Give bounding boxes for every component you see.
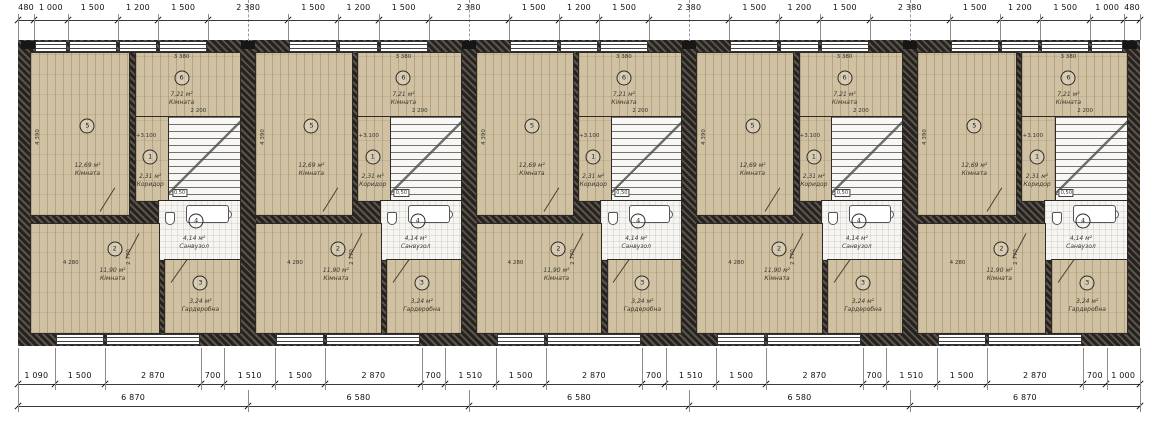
- room-number-badge: 4: [631, 214, 646, 229]
- interior-dim-4280: 4 280: [728, 260, 744, 266]
- top-dim-line: [18, 20, 1140, 21]
- window-top: [1041, 41, 1089, 52]
- window-top: [600, 41, 648, 52]
- room-name: Кімната: [519, 170, 545, 178]
- wardrobe-floor: [165, 260, 240, 333]
- bathroom-floor: [159, 201, 241, 260]
- room-number-badge: 2: [107, 242, 122, 257]
- bottom-dim-line: [18, 384, 1140, 385]
- room-area: 2,31 м²: [1023, 173, 1050, 181]
- top-dim-label: 1 500: [612, 3, 636, 12]
- extension-line: [429, 14, 430, 40]
- interior-dim-2200: 2 200: [190, 108, 206, 114]
- shaft-label: 0,50: [614, 189, 629, 197]
- door-swing-line: [764, 187, 780, 211]
- extension-line: [546, 348, 547, 390]
- extension-line: [599, 14, 600, 40]
- room-area: 12,69 м²: [298, 162, 324, 170]
- shaft-label: 0,50: [1059, 189, 1074, 197]
- interior-dim-3380: 3 380: [1061, 54, 1077, 60]
- shaft-label: 0,50: [172, 189, 187, 197]
- extension-line: [18, 348, 19, 390]
- room-area: 4,14 м²: [401, 235, 431, 243]
- extension-line: [1140, 14, 1141, 40]
- bathroom-floor: [381, 201, 461, 260]
- bottom-dim-label: 1 510: [238, 371, 262, 380]
- extension-line: [820, 14, 821, 40]
- top-dim-label: 1 500: [171, 3, 195, 12]
- bottom-dim-label: 1 000: [1111, 371, 1135, 380]
- room-area: 2,31 м²: [800, 173, 827, 181]
- extension-line: [118, 14, 119, 40]
- room-number: 3: [1080, 275, 1095, 290]
- extension-line: [68, 14, 69, 40]
- room-name: Коридор: [800, 181, 827, 189]
- top-dim-label: 1 500: [81, 3, 105, 12]
- window-top: [69, 41, 117, 52]
- window-top: [510, 41, 558, 52]
- room-label: 3,24 м² Гардеробна: [403, 298, 440, 314]
- interior-dim-4280: 4 280: [287, 260, 303, 266]
- floor-plan-drawing: 5 6 1 4 2 3 12,69 м² Кімната 7,21 м² Кім…: [0, 0, 1159, 422]
- window-top: [35, 41, 67, 52]
- interior-dim-2200: 2 200: [412, 108, 428, 114]
- vent-block-icon: [1123, 41, 1137, 49]
- extension-line: [509, 14, 510, 40]
- top-dim-label: 1 200: [788, 3, 812, 12]
- extension-line: [1090, 14, 1091, 40]
- room-number: 2: [772, 242, 787, 257]
- room-area: 2,31 м²: [137, 173, 164, 181]
- room-number-badge: 5: [304, 118, 319, 133]
- room-name: Гардеробна: [624, 306, 661, 314]
- room-name: Кімната: [391, 99, 416, 107]
- interior-dim-4280: 4 280: [950, 260, 966, 266]
- interior-dim-4390: 4 390: [35, 129, 41, 145]
- total-dim-label: 6 580: [567, 393, 591, 402]
- room-number: 2: [994, 242, 1009, 257]
- extension-line: [870, 14, 871, 40]
- room-area: 7,21 м²: [611, 91, 636, 99]
- room-name: Санвузол: [1066, 243, 1096, 251]
- bottom-dim-label: 1 510: [458, 371, 482, 380]
- top-dim-label: 1 500: [963, 3, 987, 12]
- bottom-dim-label: 2 870: [582, 371, 606, 380]
- door-swing-line: [393, 259, 410, 283]
- room-number-badge: 5: [967, 118, 982, 133]
- wardrobe-floor: [1052, 260, 1127, 333]
- bathroom-floor: [601, 201, 681, 260]
- top-dim-label: 1 200: [347, 3, 371, 12]
- room-area: 11,90 м²: [986, 267, 1012, 275]
- room-area: 12,69 м²: [739, 162, 765, 170]
- extension-line: [1124, 14, 1125, 40]
- room-label: 11,90 м² Кімната: [543, 267, 569, 283]
- extension-line: [201, 348, 202, 390]
- room-number: 6: [174, 71, 189, 86]
- room-number-badge: 4: [1076, 214, 1091, 229]
- interior-dim-3380: 3 380: [174, 54, 190, 60]
- interior-dim-4390: 4 390: [922, 129, 928, 145]
- extension-line: [224, 348, 225, 390]
- elevation-mark: +3.100: [800, 133, 820, 139]
- vent-block-icon: [241, 41, 255, 49]
- room-area: 7,21 м²: [169, 91, 194, 99]
- window-bottom: [497, 334, 545, 345]
- extension-line: [18, 390, 19, 412]
- room-area: 12,69 м²: [519, 162, 545, 170]
- toilet-icon: [165, 212, 175, 225]
- room-label: 2,31 м² Коридор: [359, 173, 386, 189]
- room-number: 1: [143, 149, 158, 164]
- interior-dim-2770: 2 770: [790, 250, 796, 266]
- top-dim-label: 1 200: [567, 3, 591, 12]
- room-number: 4: [851, 214, 866, 229]
- extension-line: [910, 390, 911, 412]
- top-dim-label: 1 500: [392, 3, 416, 12]
- interior-dim-3380: 3 380: [616, 54, 632, 60]
- room-number: 6: [396, 71, 411, 86]
- bottom-dim-label: 1 510: [679, 371, 703, 380]
- room-number-badge: 3: [635, 275, 650, 290]
- room-5-bedroom-floor: [256, 53, 352, 215]
- window-bottom: [988, 334, 1082, 345]
- room-label: 7,21 м² Кімната: [611, 91, 636, 107]
- extension-line: [105, 348, 106, 390]
- room-label: 3,24 м² Гардеробна: [624, 298, 661, 314]
- window-bottom: [326, 334, 420, 345]
- extension-line: [1107, 348, 1108, 390]
- room-name: Гардеробна: [182, 306, 219, 314]
- room-area: 2,31 м²: [359, 173, 386, 181]
- room-label: 2,31 м² Коридор: [1023, 173, 1050, 189]
- bottom-dim-label: 700: [646, 371, 662, 380]
- top-dim-label: 2 380: [677, 3, 701, 12]
- room-2-bedroom-floor: [256, 224, 381, 333]
- room-label: 7,21 м² Кімната: [832, 91, 857, 107]
- extension-line: [55, 348, 56, 390]
- interior-dim-3380: 3 380: [837, 54, 853, 60]
- room-label: 12,69 м² Кімната: [739, 162, 765, 178]
- room-label: 11,90 м² Кімната: [986, 267, 1012, 283]
- room-area: 7,21 м²: [1056, 91, 1081, 99]
- wardrobe-floor: [828, 260, 902, 333]
- room-name: Кімната: [832, 99, 857, 107]
- room-5-bedroom-floor: [477, 53, 573, 215]
- room-name: Кімната: [611, 99, 636, 107]
- door-swing-line: [986, 187, 1002, 211]
- room-name: Кімната: [764, 275, 790, 283]
- room-label: 3,24 м² Гардеробна: [844, 298, 881, 314]
- room-name: Коридор: [580, 181, 607, 189]
- room-label: 2,31 м² Коридор: [800, 173, 827, 189]
- window-bottom: [106, 334, 200, 345]
- townhouse-unit: 5 6 1 4 2 3 12,69 м² Кімната 7,21 м² Кім…: [918, 53, 1127, 333]
- bottom-dim-label: 2 870: [1023, 371, 1047, 380]
- room-number: 4: [189, 214, 204, 229]
- bottom-dim-label: 1 500: [288, 371, 312, 380]
- window-top: [1091, 41, 1123, 52]
- door-swing-line: [323, 187, 339, 211]
- interior-dim-4280: 4 280: [63, 260, 79, 266]
- top-dim-label: 1 500: [301, 3, 325, 12]
- window-top: [339, 41, 377, 52]
- room-name: Кімната: [298, 170, 324, 178]
- extension-line: [779, 14, 780, 40]
- extension-line: [642, 348, 643, 390]
- interior-dim-4390: 4 390: [481, 129, 487, 145]
- room-label: 7,21 м² Кімната: [391, 91, 416, 107]
- door-swing-line: [544, 187, 560, 211]
- room-name: Кімната: [74, 170, 100, 178]
- vent-block-icon: [462, 41, 476, 49]
- room-label: 2,31 м² Коридор: [137, 173, 164, 189]
- room-number-badge: 6: [174, 71, 189, 86]
- room-number: 3: [193, 275, 208, 290]
- extension-line: [886, 348, 887, 390]
- interior-dim-4390: 4 390: [260, 129, 266, 145]
- extension-line: [766, 348, 767, 390]
- bottom-dim-label: 700: [866, 371, 882, 380]
- interior-dim-2200: 2 200: [853, 108, 869, 114]
- room-label: 12,69 м² Кімната: [961, 162, 987, 178]
- room-number-badge: 2: [330, 242, 345, 257]
- vent-block-icon: [682, 41, 696, 49]
- room-area: 7,21 м²: [391, 91, 416, 99]
- extension-line: [422, 348, 423, 390]
- room-2-bedroom-floor: [697, 224, 822, 333]
- interior-dim-4390: 4 390: [701, 129, 707, 145]
- top-dim-label: 1 200: [126, 3, 150, 12]
- room-2-bedroom-floor: [31, 224, 159, 333]
- room-name: Кімната: [961, 170, 987, 178]
- room-number: 5: [524, 118, 539, 133]
- room-number-badge: 3: [193, 275, 208, 290]
- elevation-mark: +3.100: [1023, 133, 1043, 139]
- room-area: 3,24 м²: [624, 298, 661, 306]
- door-swing-line: [1057, 259, 1074, 283]
- room-number: 1: [806, 149, 821, 164]
- toilet-icon: [828, 212, 838, 225]
- top-dim-label: 2 380: [236, 3, 260, 12]
- extension-line: [649, 14, 650, 40]
- room-number: 6: [616, 71, 631, 86]
- room-area: 11,90 м²: [323, 267, 349, 275]
- townhouse-unit: 5 6 1 4 2 3 12,69 м² Кімната 7,21 м² Кім…: [256, 53, 461, 333]
- extension-line: [559, 14, 560, 40]
- room-label: 12,69 м² Кімната: [298, 162, 324, 178]
- townhouse-unit: 5 6 1 4 2 3 12,69 м² Кімната 7,21 м² Кім…: [477, 53, 682, 333]
- room-name: Кімната: [100, 275, 126, 283]
- room-area: 11,90 м²: [764, 267, 790, 275]
- top-dim-label: 1 500: [522, 3, 546, 12]
- extension-line: [445, 348, 446, 390]
- room-number: 2: [330, 242, 345, 257]
- room-label: 11,90 м² Кімната: [764, 267, 790, 283]
- room-name: Санвузол: [179, 243, 209, 251]
- extension-line: [379, 14, 380, 40]
- bottom-dim-label: 1 500: [729, 371, 753, 380]
- room-number: 2: [551, 242, 566, 257]
- interior-dim-2200: 2 200: [632, 108, 648, 114]
- extension-line: [1140, 348, 1141, 390]
- room-area: 3,24 м²: [403, 298, 440, 306]
- room-area: 3,24 м²: [844, 298, 881, 306]
- extension-line: [729, 14, 730, 40]
- room-number: 5: [745, 118, 760, 133]
- interior-dim-2770: 2 770: [570, 250, 576, 266]
- room-label: 11,90 м² Кімната: [323, 267, 349, 283]
- room-number-badge: 5: [80, 118, 95, 133]
- room-number: 6: [837, 71, 852, 86]
- window-top: [821, 41, 869, 52]
- total-dim-label: 6 580: [347, 393, 371, 402]
- total-dim-label: 6 870: [1013, 393, 1037, 402]
- extension-line: [950, 14, 951, 40]
- toilet-icon: [387, 212, 397, 225]
- extension-line: [496, 348, 497, 390]
- room-area: 4,14 м²: [1066, 235, 1096, 243]
- room-name: Кімната: [986, 275, 1012, 283]
- interior-dim-2770: 2 770: [1013, 250, 1019, 266]
- extension-line: [1000, 14, 1001, 40]
- total-dim-line: [18, 406, 1140, 407]
- extension-line: [666, 348, 667, 390]
- total-dim-label: 6 870: [121, 393, 145, 402]
- bottom-dim-label: 2 870: [802, 371, 826, 380]
- room-number-badge: 6: [616, 71, 631, 86]
- wardrobe-floor: [387, 260, 461, 333]
- room-name: Кімната: [169, 99, 194, 107]
- extension-line: [325, 348, 326, 390]
- top-dim-label: 1 000: [1095, 3, 1119, 12]
- townhouse-unit: 5 6 1 4 2 3 12,69 м² Кімната 7,21 м² Кім…: [31, 53, 240, 333]
- room-area: 12,69 м²: [74, 162, 100, 170]
- extension-line: [34, 14, 35, 40]
- extension-line: [469, 390, 470, 412]
- top-dim-label: 1 500: [833, 3, 857, 12]
- room-number: 5: [80, 118, 95, 133]
- extension-line: [1140, 390, 1141, 412]
- window-top: [560, 41, 598, 52]
- interior-dim-2200: 2 200: [1077, 108, 1093, 114]
- room-number-badge: 4: [851, 214, 866, 229]
- wardrobe-floor: [608, 260, 682, 333]
- extension-line: [18, 14, 19, 40]
- room-area: 7,21 м²: [832, 91, 857, 99]
- extension-line: [863, 348, 864, 390]
- room-number: 5: [967, 118, 982, 133]
- room-name: Гардеробна: [403, 306, 440, 314]
- extension-line: [987, 348, 988, 390]
- bottom-dim-label: 1 090: [24, 371, 48, 380]
- door-swing-line: [834, 259, 851, 283]
- window-bottom: [547, 334, 641, 345]
- elevation-mark: +3.100: [579, 133, 599, 139]
- room-number: 4: [631, 214, 646, 229]
- bottom-dim-label: 700: [425, 371, 441, 380]
- room-area: 2,31 м²: [580, 173, 607, 181]
- window-top: [951, 41, 999, 52]
- room-area: 3,24 м²: [182, 298, 219, 306]
- extension-line: [248, 390, 249, 412]
- room-area: 11,90 м²: [543, 267, 569, 275]
- room-label: 4,14 м² Санвузол: [401, 235, 431, 251]
- room-label: 4,14 м² Санвузол: [179, 235, 209, 251]
- extension-line: [158, 14, 159, 40]
- bottom-dim-label: 2 870: [141, 371, 165, 380]
- room-label: 4,14 м² Санвузол: [621, 235, 651, 251]
- room-number-badge: 1: [365, 149, 380, 164]
- room-number: 3: [635, 275, 650, 290]
- window-bottom: [56, 334, 104, 345]
- room-number-badge: 1: [143, 149, 158, 164]
- room-number-badge: 6: [837, 71, 852, 86]
- room-number-badge: 5: [745, 118, 760, 133]
- room-label: 11,90 м² Кімната: [100, 267, 126, 283]
- room-label: 7,21 м² Кімната: [169, 91, 194, 107]
- room-area: 4,14 м²: [179, 235, 209, 243]
- room-name: Санвузол: [401, 243, 431, 251]
- room-number-badge: 1: [1030, 149, 1045, 164]
- room-label: 3,24 м² Гардеробна: [182, 298, 219, 314]
- room-name: Коридор: [137, 181, 164, 189]
- room-number-badge: 3: [1080, 275, 1095, 290]
- room-number-badge: 4: [410, 214, 425, 229]
- extension-line: [1040, 14, 1041, 40]
- bathroom-floor: [822, 201, 902, 260]
- room-5-bedroom-floor: [697, 53, 793, 215]
- bottom-dim-label: 1 500: [950, 371, 974, 380]
- room-label: 12,69 м² Кімната: [519, 162, 545, 178]
- interior-dim-4280: 4 280: [508, 260, 524, 266]
- interior-dim-2770: 2 770: [349, 250, 355, 266]
- room-number-badge: 4: [189, 214, 204, 229]
- top-dim-label: 1 500: [1053, 3, 1077, 12]
- window-top: [159, 41, 207, 52]
- room-number-badge: 3: [414, 275, 429, 290]
- window-top: [380, 41, 428, 52]
- door-swing-line: [99, 187, 115, 211]
- window-bottom: [276, 334, 324, 345]
- elevation-mark: +3.100: [358, 133, 378, 139]
- room-number: 1: [1030, 149, 1045, 164]
- room-5-bedroom-floor: [918, 53, 1016, 215]
- room-number: 5: [304, 118, 319, 133]
- room-number-badge: 6: [1061, 71, 1076, 86]
- room-name: Коридор: [1023, 181, 1050, 189]
- extension-line: [689, 390, 690, 412]
- bathroom-floor: [1045, 201, 1127, 260]
- top-dim-label: 2 380: [457, 3, 481, 12]
- room-name: Санвузол: [842, 243, 872, 251]
- toilet-icon: [608, 212, 618, 225]
- room-number-badge: 2: [772, 242, 787, 257]
- room-2-bedroom-floor: [918, 224, 1046, 333]
- vent-block-icon: [21, 41, 35, 49]
- extension-line: [937, 348, 938, 390]
- room-label: 3,24 м² Гардеробна: [1069, 298, 1106, 314]
- room-number-badge: 5: [524, 118, 539, 133]
- room-name: Кімната: [543, 275, 569, 283]
- room-5-bedroom-floor: [31, 53, 129, 215]
- room-area: 12,69 м²: [961, 162, 987, 170]
- extension-line: [275, 348, 276, 390]
- total-dim-label: 6 580: [788, 393, 812, 402]
- room-area: 11,90 м²: [100, 267, 126, 275]
- vent-block-icon: [903, 41, 917, 49]
- bottom-dim-label: 2 870: [361, 371, 385, 380]
